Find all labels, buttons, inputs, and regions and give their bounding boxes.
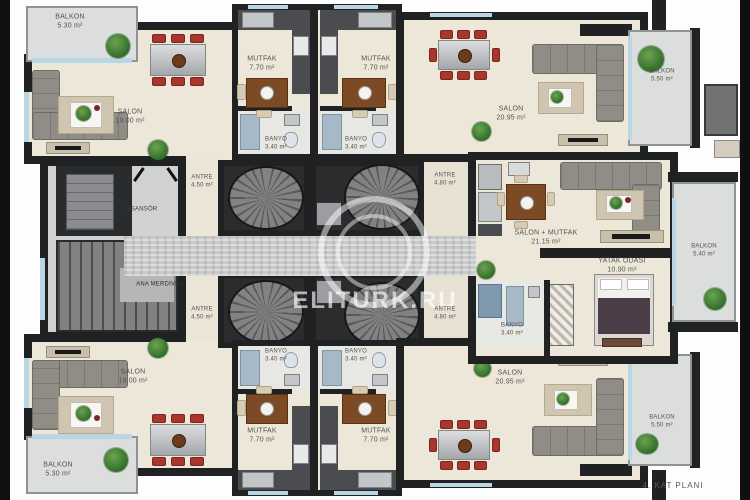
spiral-stair bbox=[228, 166, 304, 230]
bed-bench bbox=[602, 338, 642, 347]
wall bbox=[580, 24, 632, 36]
wall bbox=[544, 280, 550, 356]
chair bbox=[440, 420, 453, 429]
bathtub bbox=[240, 114, 260, 150]
toilet bbox=[372, 352, 386, 368]
wardrobe bbox=[548, 284, 574, 346]
letterbox-right bbox=[740, 0, 750, 500]
window bbox=[672, 198, 676, 306]
wall bbox=[310, 346, 318, 490]
wall bbox=[668, 322, 738, 332]
room-label-salon-tr: SALON20.95 m² bbox=[496, 105, 525, 123]
window bbox=[334, 491, 378, 495]
floor-plan: ELITURK.RU BALKON5.30 m² SALON19.00 m² M… bbox=[0, 0, 750, 500]
room-label-mutfak-b2: MUTFAK7.70 m² bbox=[361, 427, 391, 445]
chair bbox=[190, 34, 204, 43]
room-label-mutfak-b1: MUTFAK7.70 m² bbox=[247, 427, 277, 445]
chair bbox=[237, 400, 246, 416]
chair bbox=[256, 110, 272, 118]
chair bbox=[514, 221, 528, 229]
tv bbox=[55, 350, 81, 354]
tv bbox=[55, 146, 81, 150]
kitchen-sink bbox=[358, 12, 392, 28]
kitchen-sink bbox=[358, 472, 392, 488]
plant bbox=[636, 434, 658, 454]
plant bbox=[472, 122, 491, 141]
room-label-mutfak-t1: MUTFAK7.70 m² bbox=[247, 55, 277, 73]
room-label-banyo-b1: BANYO3.40 m² bbox=[265, 349, 287, 364]
chair bbox=[152, 34, 166, 43]
centerpiece bbox=[458, 439, 472, 453]
chair bbox=[474, 420, 487, 429]
plant bbox=[104, 448, 128, 472]
elevator-car bbox=[66, 174, 114, 230]
storage-box bbox=[714, 140, 740, 158]
room-label-antre-tl: ANTRE4.50 m² bbox=[191, 175, 213, 190]
kitchen-sink bbox=[242, 472, 274, 488]
chair bbox=[190, 77, 204, 86]
shower bbox=[478, 284, 502, 318]
chair bbox=[457, 71, 470, 80]
chair bbox=[497, 192, 505, 206]
room-label-salon-br: SALON20.95 m² bbox=[495, 369, 524, 387]
room-label-ana-merdiven: ANA MERDIVEN bbox=[136, 281, 184, 289]
toilet bbox=[372, 132, 386, 148]
room-label-balkon-bl: BALKON5.30 m² bbox=[43, 461, 73, 479]
bathroom-sink bbox=[284, 374, 300, 386]
neighbor-terrace bbox=[704, 84, 738, 136]
plant bbox=[106, 34, 130, 58]
chair bbox=[171, 414, 185, 423]
kitchen-sink bbox=[242, 12, 274, 28]
fridge bbox=[478, 164, 502, 190]
wall bbox=[652, 0, 666, 30]
window bbox=[248, 491, 288, 495]
kitchen-counter bbox=[478, 224, 502, 236]
wall bbox=[310, 10, 318, 154]
chair bbox=[474, 30, 487, 39]
room-label-banyo-r: BANYO3.40 m² bbox=[501, 323, 523, 338]
chair bbox=[440, 30, 453, 39]
chair bbox=[492, 438, 500, 452]
room-label-banyo-b2: BANYO3.40 m² bbox=[345, 349, 367, 364]
chair bbox=[171, 34, 185, 43]
room-label-balkon-r: BALKON5.40 m² bbox=[691, 244, 717, 259]
decor bbox=[625, 197, 631, 203]
plan-title: 4. KAT PLANI bbox=[642, 481, 703, 491]
stove bbox=[321, 36, 337, 56]
chair bbox=[492, 48, 500, 62]
decor bbox=[94, 105, 100, 111]
bathtub bbox=[322, 114, 342, 150]
plate bbox=[260, 86, 274, 100]
centerpiece bbox=[172, 54, 186, 68]
room-label-banyo-t2: BANYO3.40 m² bbox=[345, 137, 367, 152]
wall bbox=[136, 468, 242, 476]
wall bbox=[668, 172, 738, 182]
room-label-antre-tr: ANTRE4.80 m² bbox=[434, 173, 456, 188]
chair bbox=[190, 457, 204, 466]
plate bbox=[520, 196, 534, 210]
room-label-yatak-odasi: YATAK ODASI10.90 m² bbox=[598, 257, 645, 275]
chair bbox=[474, 461, 487, 470]
bathroom-sink bbox=[372, 114, 388, 126]
chair bbox=[457, 30, 470, 39]
plant bbox=[148, 338, 168, 358]
plant bbox=[704, 288, 726, 310]
chair bbox=[171, 457, 185, 466]
bathroom-sink bbox=[372, 374, 388, 386]
window bbox=[24, 92, 29, 142]
tv bbox=[568, 138, 598, 142]
room-label-antre-br: ANTRE4.80 m² bbox=[434, 307, 456, 322]
tv bbox=[612, 234, 650, 239]
room-label-mutfak-t2: MUTFAK7.70 m² bbox=[361, 55, 391, 73]
room-label-banyo-t1: BANYO3.40 m² bbox=[265, 137, 287, 152]
room-label-balkon-br: BALKON5.50 m² bbox=[649, 415, 675, 430]
bathroom-sink bbox=[284, 114, 300, 126]
bed-blanket bbox=[598, 298, 650, 334]
plate bbox=[358, 86, 372, 100]
chair bbox=[190, 414, 204, 423]
washing-machine bbox=[508, 162, 530, 176]
bathtub bbox=[322, 350, 342, 386]
pillow bbox=[627, 279, 649, 290]
room-balkon-top-right bbox=[628, 30, 692, 146]
chair bbox=[457, 461, 470, 470]
plant bbox=[610, 197, 622, 209]
plant bbox=[557, 393, 569, 405]
watermark-logo-inner bbox=[336, 214, 412, 290]
watermark-text: ELITURK.RU bbox=[292, 287, 457, 315]
window bbox=[24, 358, 29, 408]
window bbox=[628, 36, 632, 140]
stove bbox=[321, 444, 337, 464]
window bbox=[430, 13, 492, 17]
room-label-salon-mutfak: SALON + MUTFAK21.15 m² bbox=[515, 229, 578, 247]
chair bbox=[547, 192, 555, 206]
plate bbox=[358, 402, 372, 416]
plate bbox=[260, 402, 274, 416]
sofa bbox=[32, 360, 60, 430]
chair bbox=[457, 420, 470, 429]
letterbox-left bbox=[0, 0, 10, 500]
plant bbox=[477, 261, 495, 279]
chair bbox=[152, 414, 166, 423]
chair bbox=[440, 461, 453, 470]
bathroom-sink bbox=[528, 286, 540, 298]
window bbox=[430, 483, 492, 487]
chair bbox=[152, 457, 166, 466]
window bbox=[248, 5, 288, 9]
window bbox=[334, 5, 378, 9]
sofa bbox=[596, 44, 624, 122]
chair bbox=[514, 175, 528, 183]
chair bbox=[429, 48, 437, 62]
bathtub bbox=[240, 350, 260, 386]
plant bbox=[551, 91, 563, 103]
centerpiece bbox=[458, 49, 472, 63]
chair bbox=[171, 77, 185, 86]
plant bbox=[76, 106, 91, 121]
chair bbox=[352, 386, 368, 394]
plant bbox=[148, 140, 168, 160]
room-label-balkon-tl: BALKON5.30 m² bbox=[55, 13, 85, 31]
decor bbox=[94, 415, 100, 421]
chair bbox=[352, 110, 368, 118]
chair bbox=[474, 71, 487, 80]
room-antre-top-left bbox=[184, 158, 222, 236]
stove bbox=[293, 444, 309, 464]
chair bbox=[440, 71, 453, 80]
chair bbox=[429, 438, 437, 452]
wall bbox=[580, 464, 632, 476]
bathtub bbox=[506, 286, 524, 326]
window bbox=[32, 58, 132, 63]
pillow bbox=[600, 279, 622, 290]
room-label-salon-tl: SALON19.00 m² bbox=[115, 108, 144, 126]
room-label-asansor: ASANSÖR bbox=[127, 206, 158, 214]
window bbox=[32, 434, 132, 439]
chair bbox=[256, 386, 272, 394]
room-label-salon-bl: SALON19.00 m² bbox=[118, 368, 147, 386]
room-label-balkon-tr: BALKON5.50 m² bbox=[649, 69, 675, 84]
chair bbox=[152, 77, 166, 86]
window bbox=[40, 258, 45, 320]
window bbox=[628, 360, 632, 460]
room-label-antre-bl: ANTRE4.50 m² bbox=[191, 307, 213, 322]
chair bbox=[237, 84, 246, 100]
sofa bbox=[596, 378, 624, 456]
centerpiece bbox=[172, 434, 186, 448]
plant bbox=[76, 406, 91, 421]
wall bbox=[136, 22, 242, 30]
stove bbox=[293, 36, 309, 56]
